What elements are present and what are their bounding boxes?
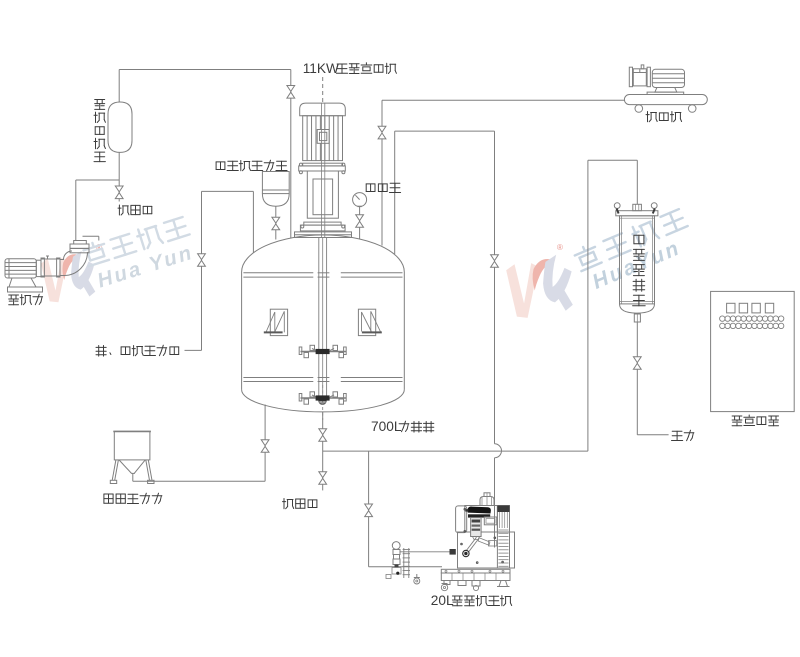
svg-text:11KW: 11KW	[303, 61, 339, 76]
svg-text:®: ®	[557, 243, 563, 252]
svg-text:20L: 20L	[431, 593, 454, 608]
svg-text:700L: 700L	[371, 419, 402, 434]
